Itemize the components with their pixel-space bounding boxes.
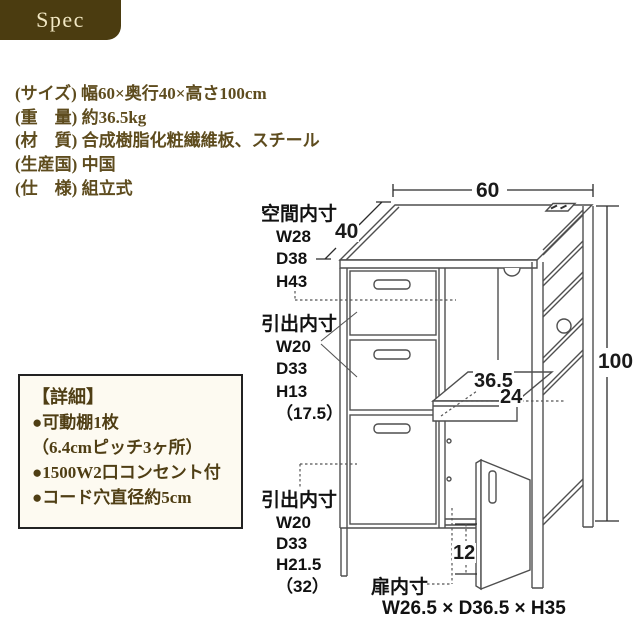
cord-hole-icon: [504, 268, 520, 276]
shelf-pin-hole: [447, 477, 451, 481]
label-drawer-upper-w: W20: [276, 336, 343, 358]
drawer-stack: [350, 271, 436, 524]
label-drawer-upper-d: D33: [276, 358, 343, 380]
door-handle: [489, 471, 496, 503]
frame-bottom-rail: [543, 479, 583, 525]
shelf-pin-hole: [447, 439, 451, 443]
dim-height-label: 100: [597, 351, 634, 372]
dim-shelf-width-label: 24: [499, 387, 523, 407]
label-drawer-lower-w: W20: [276, 512, 337, 533]
label-drawer-lower-h: H21.5: [276, 554, 337, 575]
top-front-band: [340, 260, 537, 268]
label-drawer-lower-d: D33: [276, 533, 337, 554]
label-door-inner-size: W26.5 × D36.5 × H35: [382, 599, 566, 618]
frame-back-leg: [583, 206, 593, 527]
label-space-inner-w: W28: [276, 226, 337, 248]
label-space-inner-title: 空間内寸: [261, 204, 337, 226]
dim-depth-label: 40: [334, 221, 359, 242]
label-drawer-upper: 引出内寸 W20 D33 H13 （17.5）: [261, 314, 343, 426]
frame-front-leg: [532, 262, 543, 588]
label-drawer-lower-title: 引出内寸: [261, 490, 337, 512]
page: { "header": { "title": "Spec" }, "colors…: [0, 0, 640, 640]
label-drawer-upper-title: 引出内寸: [261, 314, 343, 336]
label-space-inner-d: D38: [276, 248, 337, 270]
label-drawer-upper-h: H13: [276, 381, 343, 403]
pointer-drawer-lower: [300, 464, 357, 489]
dim-width-label: 60: [475, 180, 500, 201]
dim-bottom-clearance-label: 12: [452, 543, 476, 563]
label-door-inner-title: 扉内寸: [371, 578, 428, 597]
drawer-3-handle: [374, 424, 410, 433]
label-drawer-upper-halt: （17.5）: [276, 403, 343, 425]
front-left-leg: [341, 528, 347, 576]
drawer-1-handle: [374, 280, 410, 289]
open-door: [476, 460, 530, 589]
frame-bar: [543, 272, 583, 317]
steel-side-frame: [532, 206, 593, 588]
label-drawer-lower: 引出内寸 W20 D33 H21.5 （32）: [261, 490, 337, 597]
label-space-inner-h: H43: [276, 271, 337, 293]
label-space-inner: 空間内寸 W28 D38 H43: [261, 204, 337, 293]
side-cord-hole-icon: [557, 319, 571, 333]
drawer-2-handle: [374, 350, 410, 359]
cabinet-top-face: [340, 205, 592, 260]
label-drawer-lower-halt: （32）: [276, 576, 337, 597]
